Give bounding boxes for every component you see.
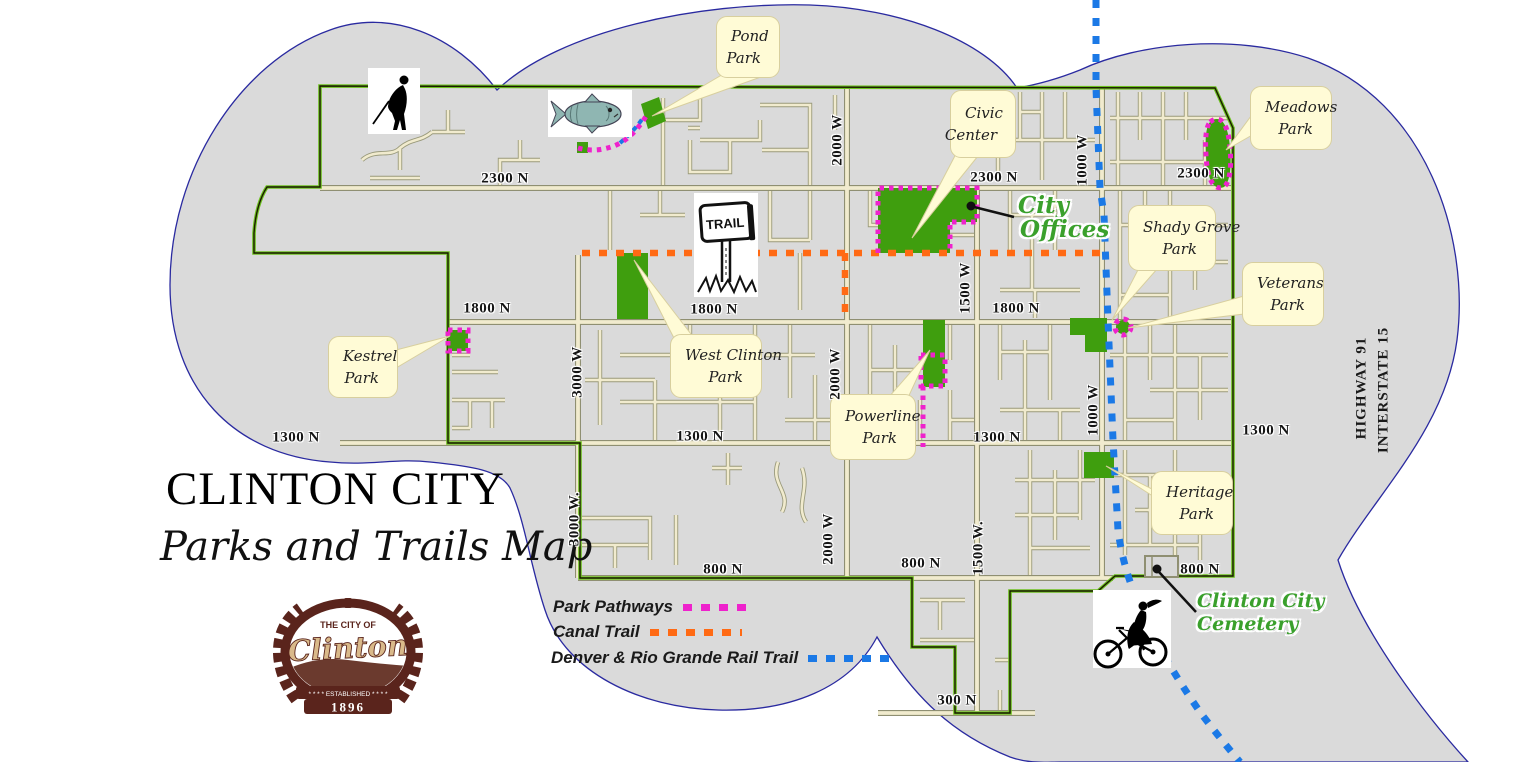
interstate-15-label: INTERSTATE 15	[1376, 327, 1393, 453]
street-label: 2300 N	[1177, 166, 1225, 183]
veterans-park-callout: Veterans Park	[1242, 262, 1324, 326]
pond-park-callout: Pond Park	[716, 16, 780, 78]
street-label: 1300 N	[272, 430, 320, 447]
svg-text:* * * * ESTABLISHED * * * *: * * * * ESTABLISHED * * * *	[309, 691, 388, 698]
street-label: 2300 N	[970, 170, 1018, 187]
street-label: 3000 W	[570, 346, 587, 397]
map-subtitle: Parks and Trails Map	[160, 524, 592, 570]
callout-line2: Park	[1162, 240, 1197, 258]
callout-line1: Veterans	[1257, 274, 1324, 292]
street-label: 1000 W	[1086, 384, 1103, 435]
street-label: 1300 N	[973, 430, 1021, 447]
street-label: 2000 W	[830, 114, 847, 165]
street-label: 2000 W	[821, 513, 838, 564]
kestrel-park-area	[448, 330, 468, 351]
street-label: 300 N	[937, 693, 977, 710]
west-clinton-park-area	[617, 253, 648, 319]
heritage-park-area	[1084, 452, 1114, 478]
street-label: 800 N	[901, 556, 941, 573]
trail-sign-icon: TRAIL	[694, 193, 758, 297]
legend-label: Canal Trail	[553, 622, 640, 642]
powerline-park-callout: Powerline Park	[830, 394, 916, 460]
west-clinton-park-callout: West Clinton Park	[670, 334, 762, 398]
callout-line2: Park	[344, 369, 379, 387]
street-label: 2000 W	[828, 348, 845, 399]
callout-line2: Park	[1278, 120, 1313, 138]
street-label: 1500 W	[958, 262, 975, 313]
golfer-icon	[368, 68, 420, 134]
legend-canal-trail: Canal Trail	[553, 622, 742, 642]
street-label: 1300 N	[676, 429, 724, 446]
legend-park-pathways: Park Pathways	[553, 597, 755, 617]
callout-line1: Pond	[731, 27, 769, 45]
svg-text:Clinton: Clinton	[287, 628, 409, 668]
city-logo: THE CITY OF Clinton * * * * ESTABLISHED …	[278, 598, 417, 715]
street-label: 3000 W.	[567, 492, 584, 546]
shady-grove-park-callout: Shady Grove Park	[1128, 205, 1216, 271]
bicyclist-icon	[1093, 590, 1171, 668]
street-label: 1800 N	[992, 301, 1040, 318]
civic-center-callout: Civic Center	[950, 90, 1016, 158]
callout-line1: Kestrel	[343, 347, 397, 365]
canal-trail-swatch	[650, 629, 742, 636]
parks-and-trails-map: TRAIL THE CITY OF Clinton * * * * ESTABL…	[0, 0, 1525, 762]
fish-icon	[548, 90, 632, 137]
cemetery-label-line2: Cemetery	[1197, 613, 1298, 635]
svg-text:THE CITY OF: THE CITY OF	[320, 620, 376, 630]
callout-line2: Park	[862, 429, 897, 447]
callout-line1: Heritage	[1166, 483, 1233, 501]
map-title: CLINTON CITY	[166, 462, 505, 516]
callout-line1: Powerline	[845, 407, 921, 425]
callout-line2: Park	[1179, 505, 1214, 523]
legend-label: Denver & Rio Grande Rail Trail	[551, 648, 798, 668]
svg-text:TRAIL: TRAIL	[705, 215, 744, 233]
street-label: 1800 N	[463, 301, 511, 318]
street-label: 1000 W	[1075, 134, 1092, 185]
street-label: 1500 W.	[971, 521, 988, 575]
callout-line1: Meadows	[1265, 98, 1337, 116]
park-pathways-swatch	[683, 604, 755, 611]
legend-label: Park Pathways	[553, 597, 673, 617]
callout-line2: Center	[945, 126, 997, 144]
svg-text:1896: 1896	[331, 700, 365, 715]
heritage-park-callout: Heritage Park	[1151, 471, 1233, 535]
street-label: 1800 N	[690, 302, 738, 319]
callout-line1: Shady Grove	[1143, 218, 1240, 236]
cemetery-label-line1: Clinton City	[1197, 590, 1324, 612]
callout-line2: Park	[726, 49, 761, 67]
street-label: 2300 N	[481, 171, 529, 188]
highway-91-label: HIGHWAY 91	[1354, 337, 1371, 440]
city-offices-label-line2: Offices	[1020, 216, 1109, 243]
callout-line1: West Clinton	[685, 346, 782, 364]
street-label: 1300 N	[1242, 423, 1290, 440]
legend-rail-trail: Denver & Rio Grande Rail Trail	[551, 648, 890, 668]
callout-line1: Civic	[965, 104, 1003, 122]
kestrel-park-callout: Kestrel Park	[328, 336, 398, 398]
callout-line2: Park	[1270, 296, 1305, 314]
street-label: 800 N	[703, 562, 743, 579]
street-label: 800 N	[1180, 562, 1220, 579]
rail-trail-swatch	[808, 655, 890, 662]
city-offices-label-line1: City	[1018, 192, 1069, 219]
callout-line2: Park	[708, 368, 743, 386]
meadows-park-callout: Meadows Park	[1250, 86, 1332, 150]
